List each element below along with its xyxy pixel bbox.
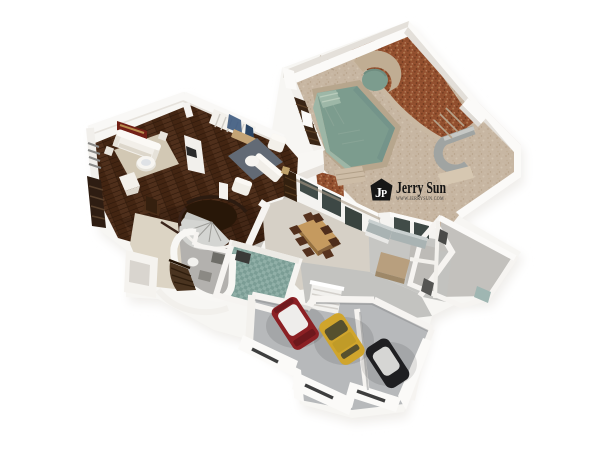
svg-text:Jerry Sun: Jerry Sun — [396, 178, 446, 197]
svg-text:P: P — [381, 189, 387, 200]
svg-text:WWW.JERRYSUN.COM: WWW.JERRYSUN.COM — [396, 197, 444, 202]
